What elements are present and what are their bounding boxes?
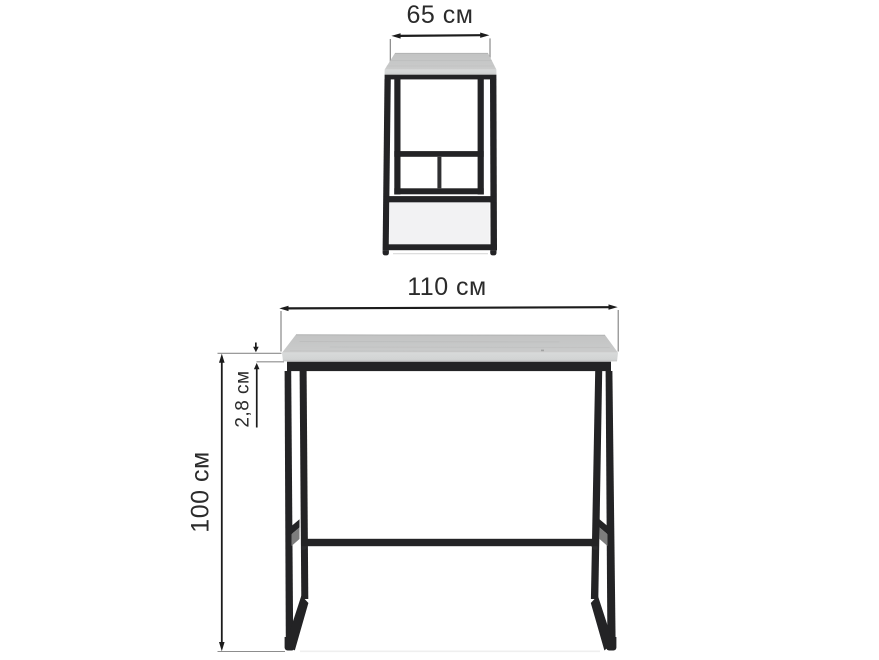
svg-text:2,8 см: 2,8 см bbox=[233, 370, 254, 427]
svg-text:100 см: 100 см bbox=[187, 451, 215, 532]
svg-text:65 см: 65 см bbox=[407, 1, 474, 29]
svg-text:110 см: 110 см bbox=[407, 273, 487, 301]
